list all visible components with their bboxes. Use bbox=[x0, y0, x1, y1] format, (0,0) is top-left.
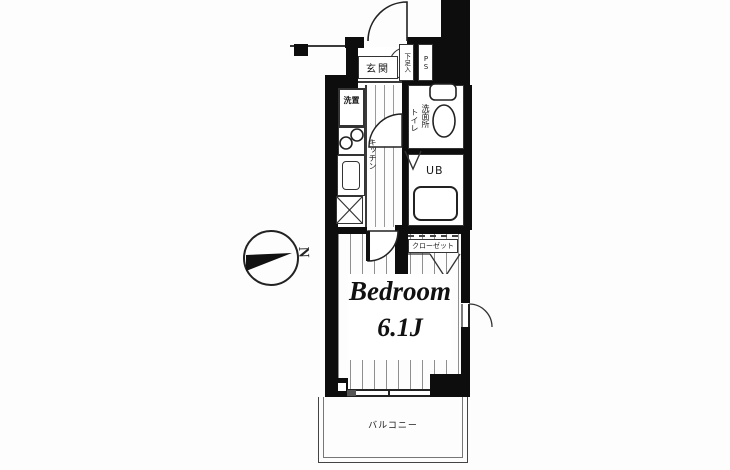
kitchen-label: キッチン bbox=[368, 138, 376, 170]
shoe-box-label-box: 下足入 bbox=[399, 44, 414, 81]
unit-bath-fold-door-icon bbox=[405, 151, 421, 169]
north-label: N bbox=[295, 247, 311, 259]
pipe-space-label-box: PS bbox=[418, 44, 433, 81]
washer-label-wrap: 洗置 bbox=[338, 90, 365, 110]
balcony-label-wrap: バルコニー bbox=[340, 417, 446, 431]
floorplan-canvas: クローゼット bbox=[0, 0, 730, 470]
side-window-swing-icon bbox=[461, 304, 492, 327]
toilet-icon bbox=[430, 84, 456, 137]
entrance-label: 玄関 bbox=[366, 60, 390, 75]
bedroom-door-swing-icon bbox=[368, 231, 398, 261]
toilet-label: トイレ bbox=[410, 108, 418, 132]
stove-burners-icon bbox=[340, 129, 363, 149]
entrance-label-box: 玄関 bbox=[358, 56, 398, 79]
bedroom-text-panel: Bedroom 6.1J bbox=[348, 274, 452, 360]
balcony-label: バルコニー bbox=[368, 418, 418, 431]
pipe-space-label: PS bbox=[422, 55, 429, 71]
refrigerator-x-mark-icon bbox=[337, 197, 362, 223]
unit-bath-label: UB bbox=[426, 164, 444, 177]
bedroom-name: Bedroom bbox=[348, 276, 452, 307]
north-compass-icon: N bbox=[244, 231, 311, 285]
washer-label: 洗置 bbox=[344, 95, 360, 106]
bedroom-size: 6.1J bbox=[348, 313, 452, 343]
shoe-box-label: 下足入 bbox=[403, 53, 410, 73]
washroom-label: 洗面所 bbox=[421, 104, 429, 128]
entrance-door-swing-icon bbox=[368, 2, 407, 41]
